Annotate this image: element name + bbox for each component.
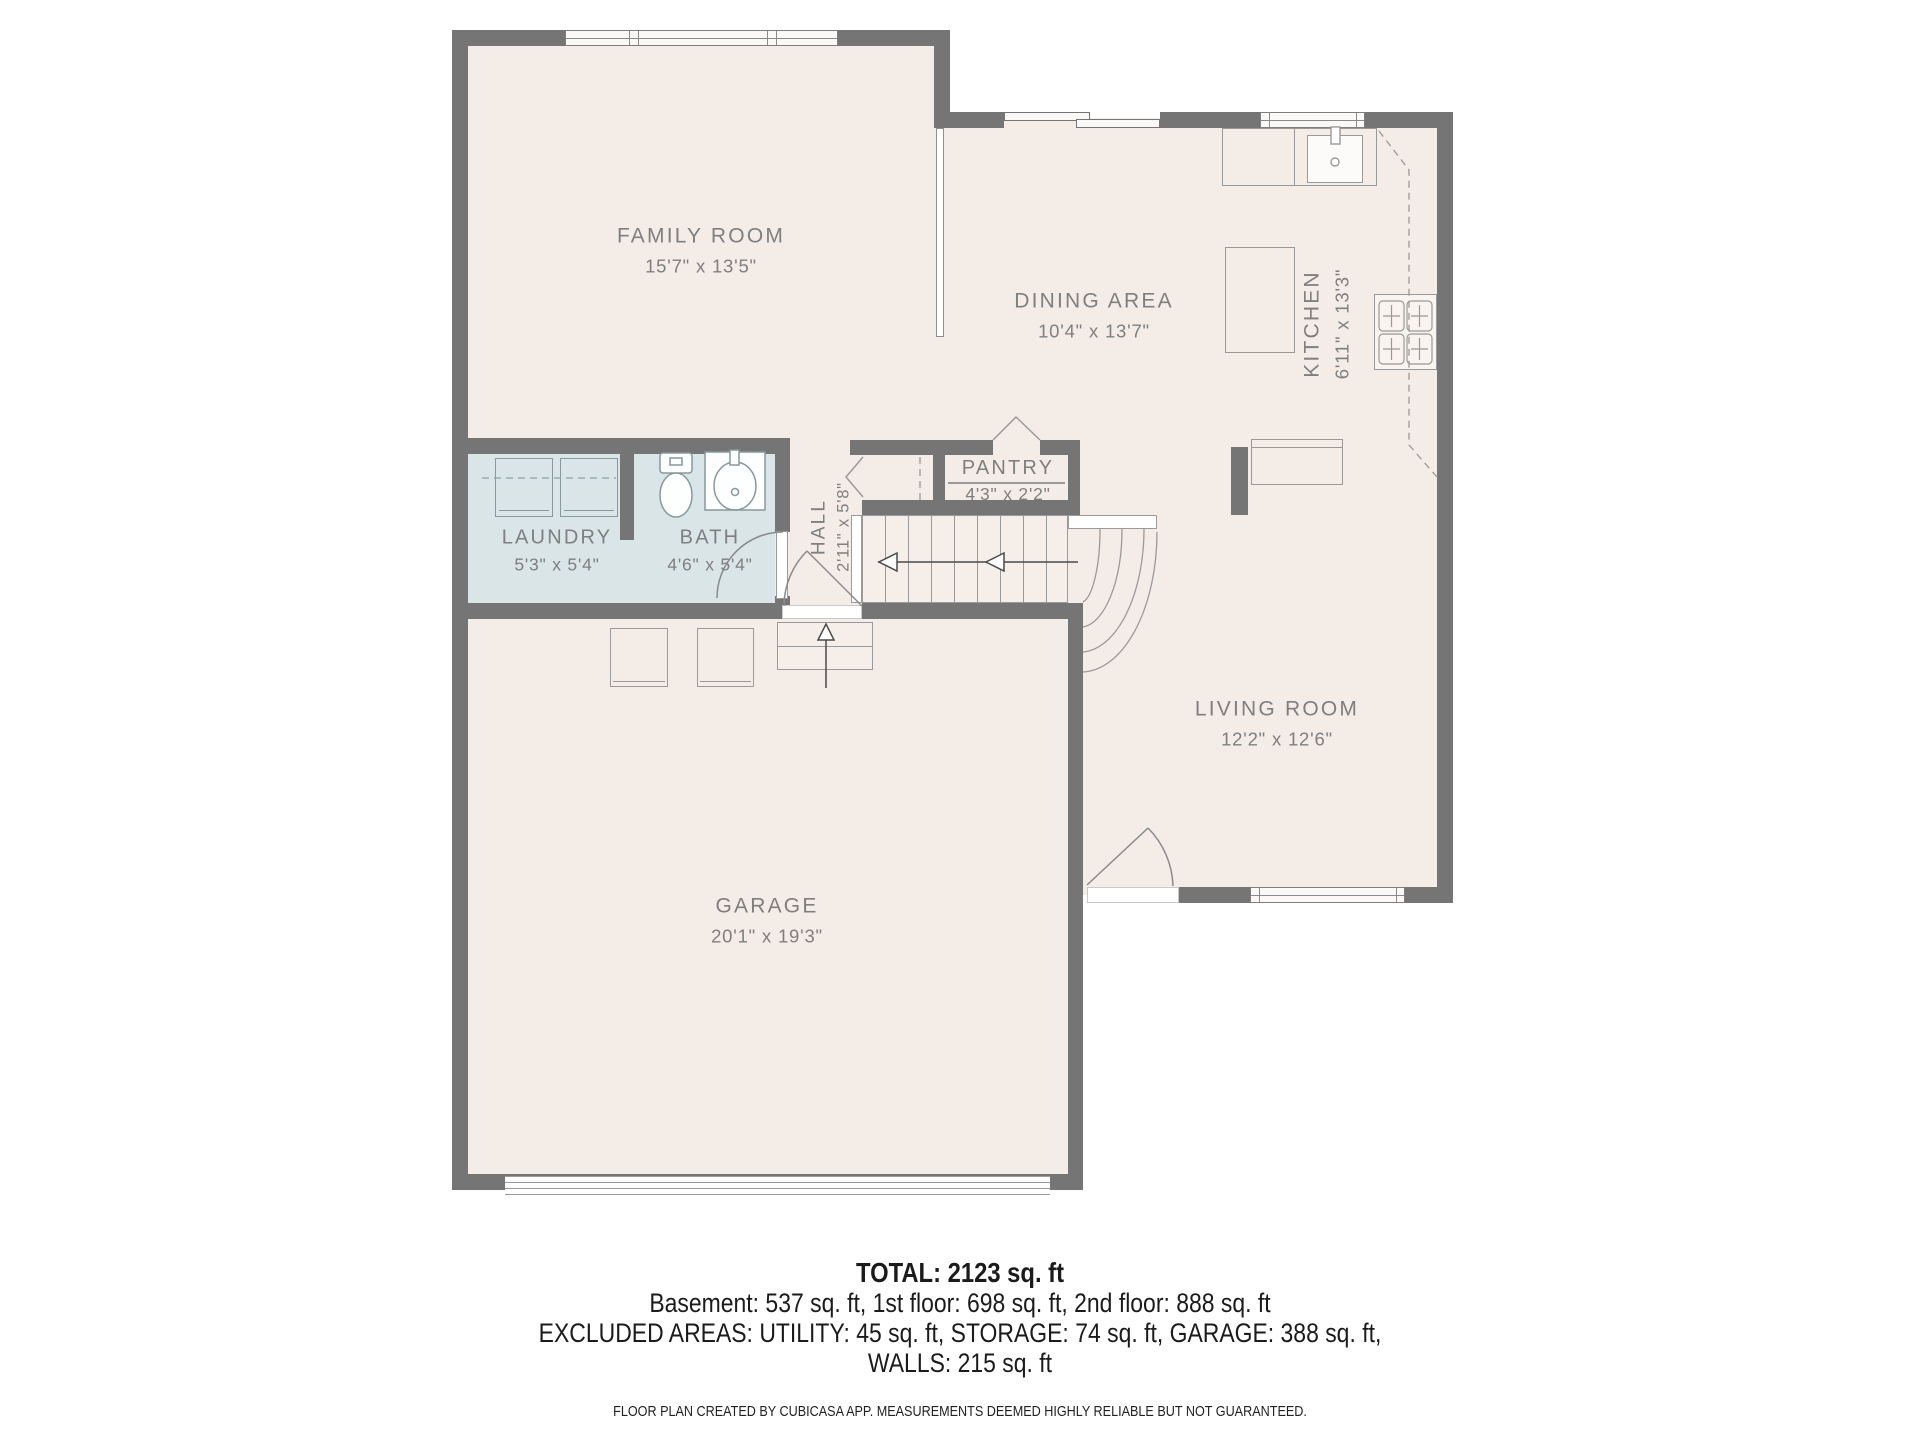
floor-areas-text: Basement: 537 sq. ft, 1st floor: 698 sq.… xyxy=(144,1288,1776,1318)
room-dims: 20'1" x 19'3" xyxy=(711,926,823,948)
wall xyxy=(452,438,790,454)
kitchen-island xyxy=(1225,247,1295,353)
stair-landing-edge xyxy=(1068,515,1157,529)
total-area-text: TOTAL: 2123 sq. ft xyxy=(144,1258,1776,1288)
room-name: HALL xyxy=(809,482,831,572)
room-label-dining: DINING AREA 10'4" x 13'7" xyxy=(1014,290,1174,343)
front-door-opening xyxy=(1087,887,1179,903)
window-icon xyxy=(1260,112,1365,128)
door-threshold xyxy=(782,605,862,619)
wall xyxy=(934,112,1004,128)
wall xyxy=(452,603,782,619)
room-label-bath: BATH 4'6" x 5'4" xyxy=(667,527,752,576)
lower-cabinet xyxy=(1251,439,1343,485)
stove-icon xyxy=(1374,294,1437,370)
room-label-hall: HALL 2'11" x 5'8" xyxy=(809,482,854,572)
room-name: PANTRY xyxy=(962,457,1054,480)
room-name: BATH xyxy=(667,527,752,550)
room-dims: 15'7" x 13'5" xyxy=(617,256,785,278)
wall xyxy=(850,440,993,455)
room-label-garage: GARAGE 20'1" x 19'3" xyxy=(711,895,823,948)
room-label-kitchen: KITCHEN 6'11" x 13'3" xyxy=(1301,269,1354,380)
room-dims: 6'11" x 13'3" xyxy=(1332,269,1354,380)
water-heater-icon xyxy=(610,628,668,687)
walls-area-text: WALLS: 215 sq. ft xyxy=(144,1348,1776,1378)
excluded-areas-text: EXCLUDED AREAS: UTILITY: 45 sq. ft, STOR… xyxy=(144,1318,1776,1348)
room-dims: 5'3" x 5'4" xyxy=(502,555,613,576)
kitchen-sink-icon xyxy=(1307,135,1363,183)
room-label-family: FAMILY ROOM 15'7" x 13'5" xyxy=(617,225,785,278)
wall xyxy=(1068,619,1083,1190)
room-name: GARAGE xyxy=(711,895,823,919)
room-label-pantry: PANTRY 4'3" x 2'2" xyxy=(962,457,1054,505)
wall xyxy=(775,438,790,532)
room-label-living: LIVING ROOM 12'2" x 12'6" xyxy=(1195,698,1359,751)
furnace-icon xyxy=(697,628,754,687)
room-dims: 4'3" x 2'2" xyxy=(962,484,1054,505)
window-icon xyxy=(1250,887,1405,903)
area-summary: TOTAL: 2123 sq. ft Basement: 537 sq. ft,… xyxy=(0,1258,1920,1420)
room-label-laundry: LAUNDRY 5'3" x 5'4" xyxy=(502,527,613,576)
wall xyxy=(1405,887,1453,903)
room-name: DINING AREA xyxy=(1014,290,1174,314)
staircase xyxy=(862,515,1068,603)
wall xyxy=(1040,440,1068,455)
room-divider xyxy=(936,128,944,337)
room-dims: 2'11" x 5'8" xyxy=(835,482,854,572)
entry-steps xyxy=(777,622,873,670)
wall xyxy=(1068,440,1080,515)
room-dims: 10'4" x 13'7" xyxy=(1014,321,1174,343)
wall xyxy=(1160,112,1260,128)
room-dims: 12'2" x 12'6" xyxy=(1195,729,1359,751)
door-leaf xyxy=(776,531,788,599)
wall xyxy=(862,603,1083,619)
sliding-door-icon xyxy=(1076,119,1160,128)
room-name: LAUNDRY xyxy=(502,527,613,550)
room-dims: 4'6" x 5'4" xyxy=(667,555,752,576)
washer-icon xyxy=(495,458,553,517)
room-name: KITCHEN xyxy=(1301,269,1325,380)
room-name: FAMILY ROOM xyxy=(617,225,785,249)
wall xyxy=(1437,112,1453,903)
room-name: LIVING ROOM xyxy=(1195,698,1359,722)
wall xyxy=(620,454,634,540)
garage-door-icon xyxy=(505,1176,1050,1197)
wall xyxy=(1231,447,1248,515)
dryer-icon xyxy=(560,458,618,517)
window-icon xyxy=(565,30,838,46)
floor-plan: FAMILY ROOM 15'7" x 13'5" DINING AREA 10… xyxy=(0,0,1920,1440)
disclaimer-text: FLOOR PLAN CREATED BY CUBICASA APP. MEAS… xyxy=(125,1404,1795,1420)
wall xyxy=(1179,887,1250,903)
